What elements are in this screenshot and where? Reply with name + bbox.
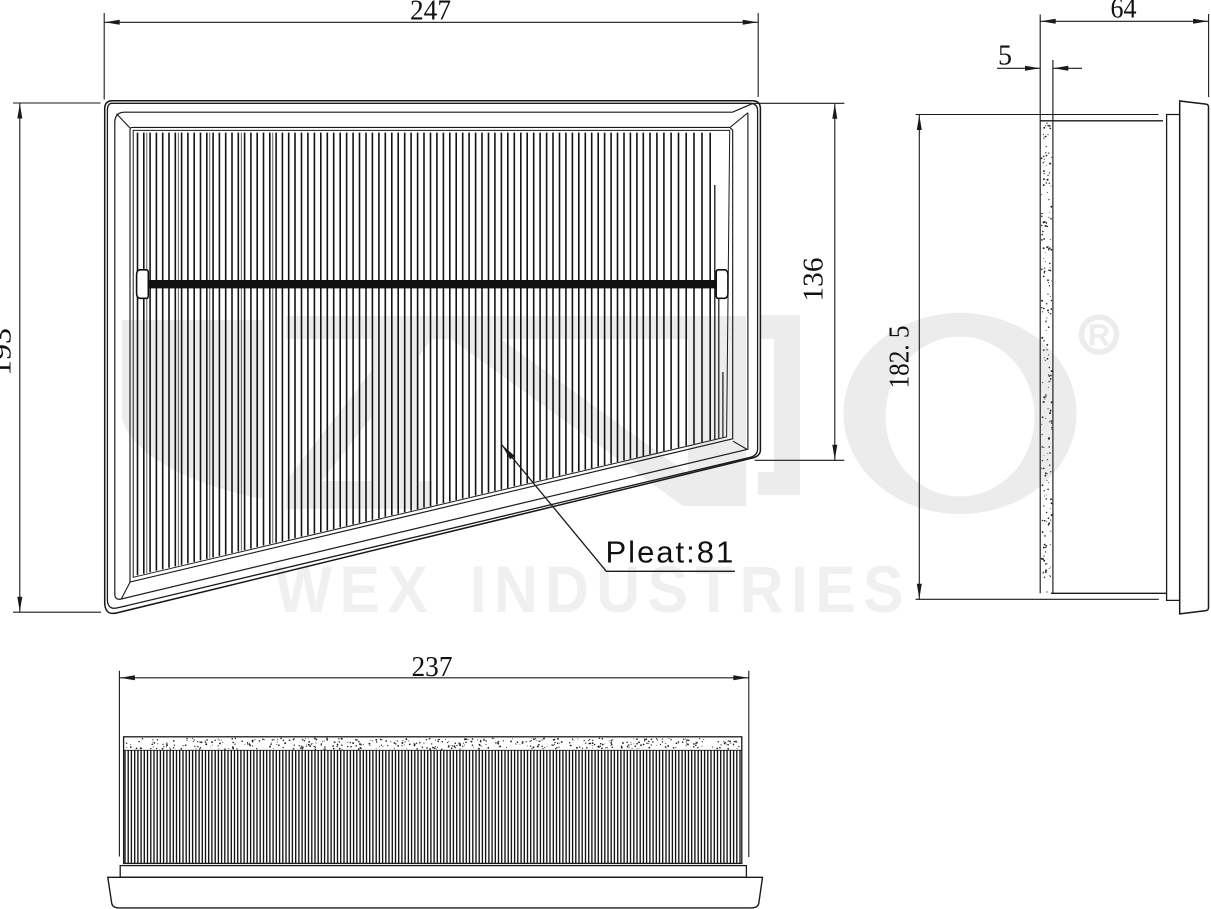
svg-text:182. 5: 182. 5 xyxy=(885,326,916,389)
svg-text:237: 237 xyxy=(412,652,453,683)
svg-text:5: 5 xyxy=(998,41,1012,72)
svg-text:Pleat:81: Pleat:81 xyxy=(606,535,736,570)
svg-text:193: 193 xyxy=(0,328,18,376)
svg-text:64: 64 xyxy=(1111,0,1137,25)
svg-text:WEX INDUSTRIES: WEX INDUSTRIES xyxy=(275,554,911,627)
svg-text:R: R xyxy=(1088,318,1110,353)
svg-text:247: 247 xyxy=(410,0,451,27)
svg-text:136: 136 xyxy=(799,258,830,302)
